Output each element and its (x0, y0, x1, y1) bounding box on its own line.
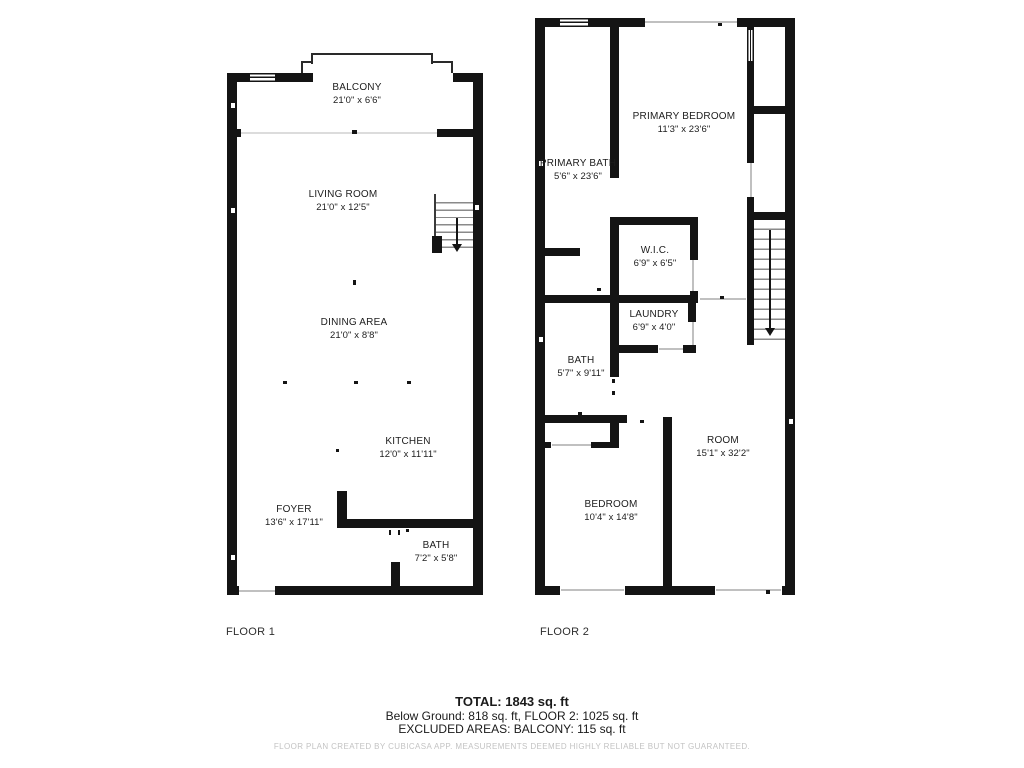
tick-mark (640, 420, 644, 423)
floor-plan-canvas: BALCONY 21'0" x 6'6" LIVING ROOM 21'0" x… (0, 0, 1024, 768)
wall-notch (231, 208, 235, 213)
room-name: BALCONY (332, 81, 381, 94)
balcony-railing (311, 53, 433, 55)
room-label-laundry: LAUNDRY 6'9" x 4'0" (629, 308, 678, 334)
wall-segment (535, 18, 560, 27)
room-dims: 10'4" x 14'8" (584, 511, 637, 524)
room-dims: 5'7" x 9'11" (557, 367, 604, 380)
room-name: LAUNDRY (629, 308, 678, 321)
balcony-railing (431, 61, 453, 63)
tick-mark (354, 381, 358, 384)
wall-segment (747, 197, 754, 345)
room-label-balcony: BALCONY 21'0" x 6'6" (332, 81, 381, 107)
tick-mark (612, 379, 615, 383)
tick-mark (336, 449, 339, 452)
room-dims: 6'9" x 6'5" (634, 257, 677, 270)
room-label-foyer: FOYER 13'6" x 17'11" (265, 503, 323, 529)
room-dims: 21'0" x 6'6" (332, 94, 381, 107)
window (560, 18, 588, 27)
wall-segment (543, 442, 551, 448)
wall-segment (535, 295, 698, 303)
wall-segment (747, 114, 754, 163)
balcony-railing (451, 61, 453, 73)
room-label-bath-f2: BATH 5'7" x 9'11" (557, 354, 604, 380)
room-name: DINING AREA (321, 316, 388, 329)
floor2-label: FLOOR 2 (540, 626, 589, 638)
wall-segment (747, 61, 754, 110)
area-breakdown-text: Below Ground: 818 sq. ft, FLOOR 2: 1025 … (0, 709, 1024, 723)
wall-segment (663, 417, 672, 595)
room-name: FOYER (265, 503, 323, 516)
room-dims: 13'6" x 17'11" (265, 516, 323, 529)
wall-segment (275, 586, 483, 595)
room-label-primary-bedroom: PRIMARY BEDROOM 11'3" x 23'6" (633, 110, 736, 136)
tick-mark (597, 288, 601, 291)
wall-segment (747, 18, 754, 30)
room-name: KITCHEN (379, 435, 436, 448)
wall-segment (535, 18, 545, 595)
sliding-door-line (241, 132, 437, 134)
wall-segment (610, 217, 698, 225)
wall-segment (737, 18, 795, 27)
tick-mark (389, 530, 391, 535)
door-opening (239, 590, 275, 592)
balcony-railing (301, 61, 303, 73)
tick-mark (614, 90, 617, 94)
tick-mark (353, 280, 356, 285)
room-label-dining-area: DINING AREA 21'0" x 8'8" (321, 316, 388, 342)
wall-segment (227, 129, 241, 137)
tick-mark (398, 530, 400, 535)
room-name: ROOM (696, 434, 749, 447)
room-name: BATH (557, 354, 604, 367)
room-label-living-room: LIVING ROOM 21'0" x 12'5" (309, 188, 378, 214)
room-dims: 11'3" x 23'6" (633, 123, 736, 136)
room-dims: 12'0" x 11'11" (379, 448, 436, 461)
room-label-bath-f1: BATH 7'2" x 5'8" (415, 539, 458, 565)
tick-mark (283, 381, 287, 384)
tick-mark (612, 391, 615, 395)
wall-segment (437, 129, 483, 137)
tick-mark (352, 130, 357, 134)
window-opening (645, 21, 737, 23)
wall-segment (688, 303, 696, 322)
room-name: W.I.C. (634, 244, 677, 257)
total-area-text: TOTAL: 1843 sq. ft (0, 694, 1024, 709)
tick-mark (406, 529, 409, 532)
disclaimer-text: FLOOR PLAN CREATED BY CUBICASA APP. MEAS… (0, 742, 1024, 751)
excluded-areas-text: EXCLUDED AREAS: BALCONY: 115 sq. ft (0, 722, 1024, 736)
door-opening (716, 589, 781, 591)
wall-segment (747, 106, 795, 114)
room-label-wic: W.I.C. 6'9" x 6'5" (634, 244, 677, 270)
tick-mark (664, 513, 667, 517)
wall-notch (789, 419, 793, 424)
door-opening (750, 163, 752, 197)
wall-segment (535, 586, 560, 595)
wall-segment (782, 586, 795, 595)
room-name: BEDROOM (584, 498, 637, 511)
wall-segment (275, 73, 313, 82)
wall-notch (231, 555, 235, 560)
wall-segment (227, 73, 237, 595)
window (747, 30, 754, 61)
tick-mark (720, 296, 724, 299)
wall-segment (473, 73, 483, 595)
stairs-down-arrow-head (452, 244, 462, 252)
tick-mark (766, 590, 770, 594)
wall-segment (610, 18, 619, 178)
door-opening (659, 348, 683, 350)
window (250, 73, 275, 82)
room-dims: 21'0" x 12'5" (309, 201, 378, 214)
wall-notch (475, 205, 479, 210)
tick-mark (578, 412, 582, 415)
stairs-down-arrow (769, 230, 771, 330)
tick-mark (407, 381, 411, 384)
room-label-primary-bath: PRIMARY BATH 5'6" x 23'6" (540, 157, 616, 183)
room-name: LIVING ROOM (309, 188, 378, 201)
wall-segment (591, 442, 617, 448)
wall-segment (227, 586, 239, 595)
room-label-bedroom: BEDROOM 10'4" x 14'8" (584, 498, 637, 524)
stairs-down-arrow (456, 218, 458, 246)
floor1-label: FLOOR 1 (226, 626, 275, 638)
wall-segment (543, 248, 580, 256)
room-dims: 6'9" x 4'0" (629, 321, 678, 334)
wall-segment (683, 345, 696, 353)
room-label-kitchen: KITCHEN 12'0" x 11'11" (379, 435, 436, 461)
wall-segment (612, 345, 658, 353)
room-dims: 15'1" x 32'2" (696, 447, 749, 460)
room-dims: 7'2" x 5'8" (415, 552, 458, 565)
closet-door-line (552, 444, 591, 446)
room-name: PRIMARY BATH (540, 157, 616, 170)
wall-segment (690, 225, 698, 260)
wall-notch (539, 337, 543, 342)
room-dims: 21'0" x 8'8" (321, 329, 388, 342)
stairs-down-arrow-head (765, 328, 775, 336)
room-name: PRIMARY BEDROOM (633, 110, 736, 123)
tick-mark (718, 23, 722, 26)
room-label-room: ROOM 15'1" x 32'2" (696, 434, 749, 460)
wall-segment (391, 562, 400, 595)
wall-segment (754, 212, 795, 220)
door-opening (561, 589, 624, 591)
wall-segment (337, 519, 483, 528)
tick-mark (455, 130, 460, 134)
room-dims: 5'6" x 23'6" (540, 170, 616, 183)
door-opening (692, 260, 694, 291)
wall-segment (432, 236, 442, 253)
room-name: BATH (415, 539, 458, 552)
tick-mark (583, 298, 587, 301)
wall-notch (231, 103, 235, 108)
wall-segment (785, 18, 795, 595)
door-opening (692, 322, 694, 345)
